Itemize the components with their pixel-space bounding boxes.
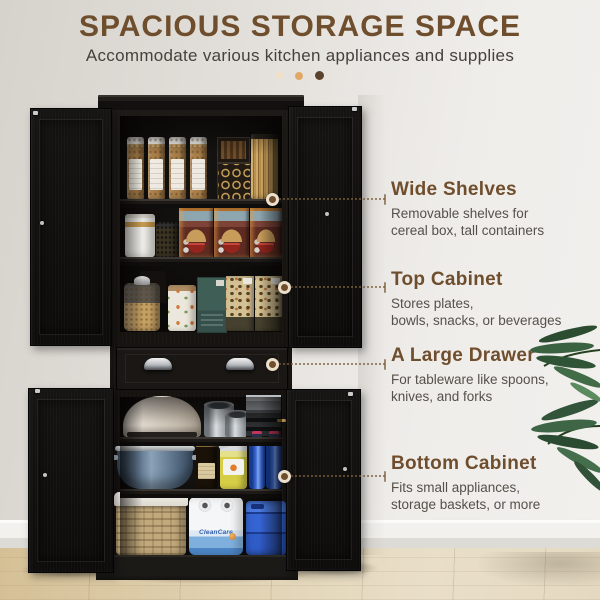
granola-nut-box	[226, 276, 254, 331]
wicker-basket	[116, 500, 186, 555]
potted-plant-leaves	[520, 322, 600, 507]
breadstick-jar	[127, 137, 144, 199]
plant-floor-shadow	[468, 552, 600, 590]
leader-tick-bottom-cabinet	[384, 471, 386, 482]
bottom-left-door	[28, 388, 114, 573]
dots-divider	[0, 71, 600, 80]
cereal-box	[214, 208, 249, 257]
oil-bottle	[196, 442, 217, 489]
bottom-right-door	[286, 389, 361, 571]
door-hinge	[33, 111, 38, 115]
wall-shadow	[358, 95, 386, 555]
door-hinge	[35, 389, 40, 393]
dark-food-jar	[156, 222, 178, 257]
divider-dot-dark	[315, 71, 324, 80]
leader-line-bottom-cabinet	[291, 475, 385, 477]
callout-description: Removable shelves for cereal box, tall c…	[391, 205, 586, 239]
ring-storage-box	[217, 163, 251, 201]
leader-dot-bottom-cabinet	[278, 470, 291, 483]
oat-glass-jar	[124, 283, 160, 331]
callout-top-cabinet: Top Cabinet Stores plates, bowls, snacks…	[391, 269, 586, 329]
page-title: SPACIOUS STORAGE SPACE	[0, 10, 600, 44]
divider-dot-mid	[295, 72, 303, 80]
leader-line-wide-shelves	[279, 198, 385, 200]
callout-wide-shelves: Wide Shelves Removable shelves for cerea…	[391, 179, 586, 239]
door-knob	[43, 473, 47, 477]
cabinet-base-plinth	[96, 555, 298, 580]
callout-title: Top Cabinet	[391, 269, 586, 291]
drawer-cup-handle	[226, 358, 254, 370]
divider-dot-light	[276, 72, 283, 79]
door-knob	[40, 221, 44, 225]
leader-dot-wide-shelves	[266, 193, 279, 206]
shelf-board	[120, 199, 282, 208]
spaghetti-container	[251, 134, 278, 199]
large-drawer	[116, 347, 288, 390]
leader-line-large-drawer	[279, 363, 385, 365]
paper-towel-pack: CleanCare	[189, 497, 243, 555]
shelf-board	[120, 489, 282, 498]
dog-graphic	[229, 533, 236, 540]
leader-tick-wide-shelves	[384, 194, 386, 205]
cereal-box	[179, 208, 213, 257]
page-subtitle: Accommodate various kitchen appliances a…	[0, 46, 600, 66]
door-hinge	[348, 392, 353, 396]
breadstick-jar	[148, 137, 165, 199]
blue-storage-bins	[246, 501, 286, 555]
pantry-cabinet-infographic: SPACIOUS STORAGE SPACE Accommodate vario…	[0, 0, 600, 600]
leader-tick-large-drawer	[384, 359, 386, 370]
leader-line-top-cabinet	[291, 286, 385, 288]
leader-tick-top-cabinet	[384, 282, 386, 293]
white-canister	[125, 214, 155, 257]
drawer-cup-handle	[144, 358, 172, 370]
callout-title: Wide Shelves	[391, 179, 586, 201]
shelf-board	[120, 437, 282, 446]
floral-canister	[168, 285, 196, 331]
cereal-box	[250, 208, 282, 257]
cereals-box	[197, 277, 227, 333]
breadstick-jar	[190, 137, 207, 199]
door-hinge	[352, 107, 357, 111]
door-knob	[325, 212, 329, 216]
blue-stock-pot	[117, 446, 193, 489]
shelf-board	[120, 257, 282, 266]
leader-dot-top-cabinet	[278, 281, 291, 294]
snack-stick-box	[217, 137, 250, 163]
top-right-door	[288, 106, 362, 348]
door-knob	[343, 467, 347, 471]
breadstick-jar	[169, 137, 186, 199]
leader-dot-large-drawer	[266, 358, 279, 371]
top-left-door	[30, 108, 112, 346]
